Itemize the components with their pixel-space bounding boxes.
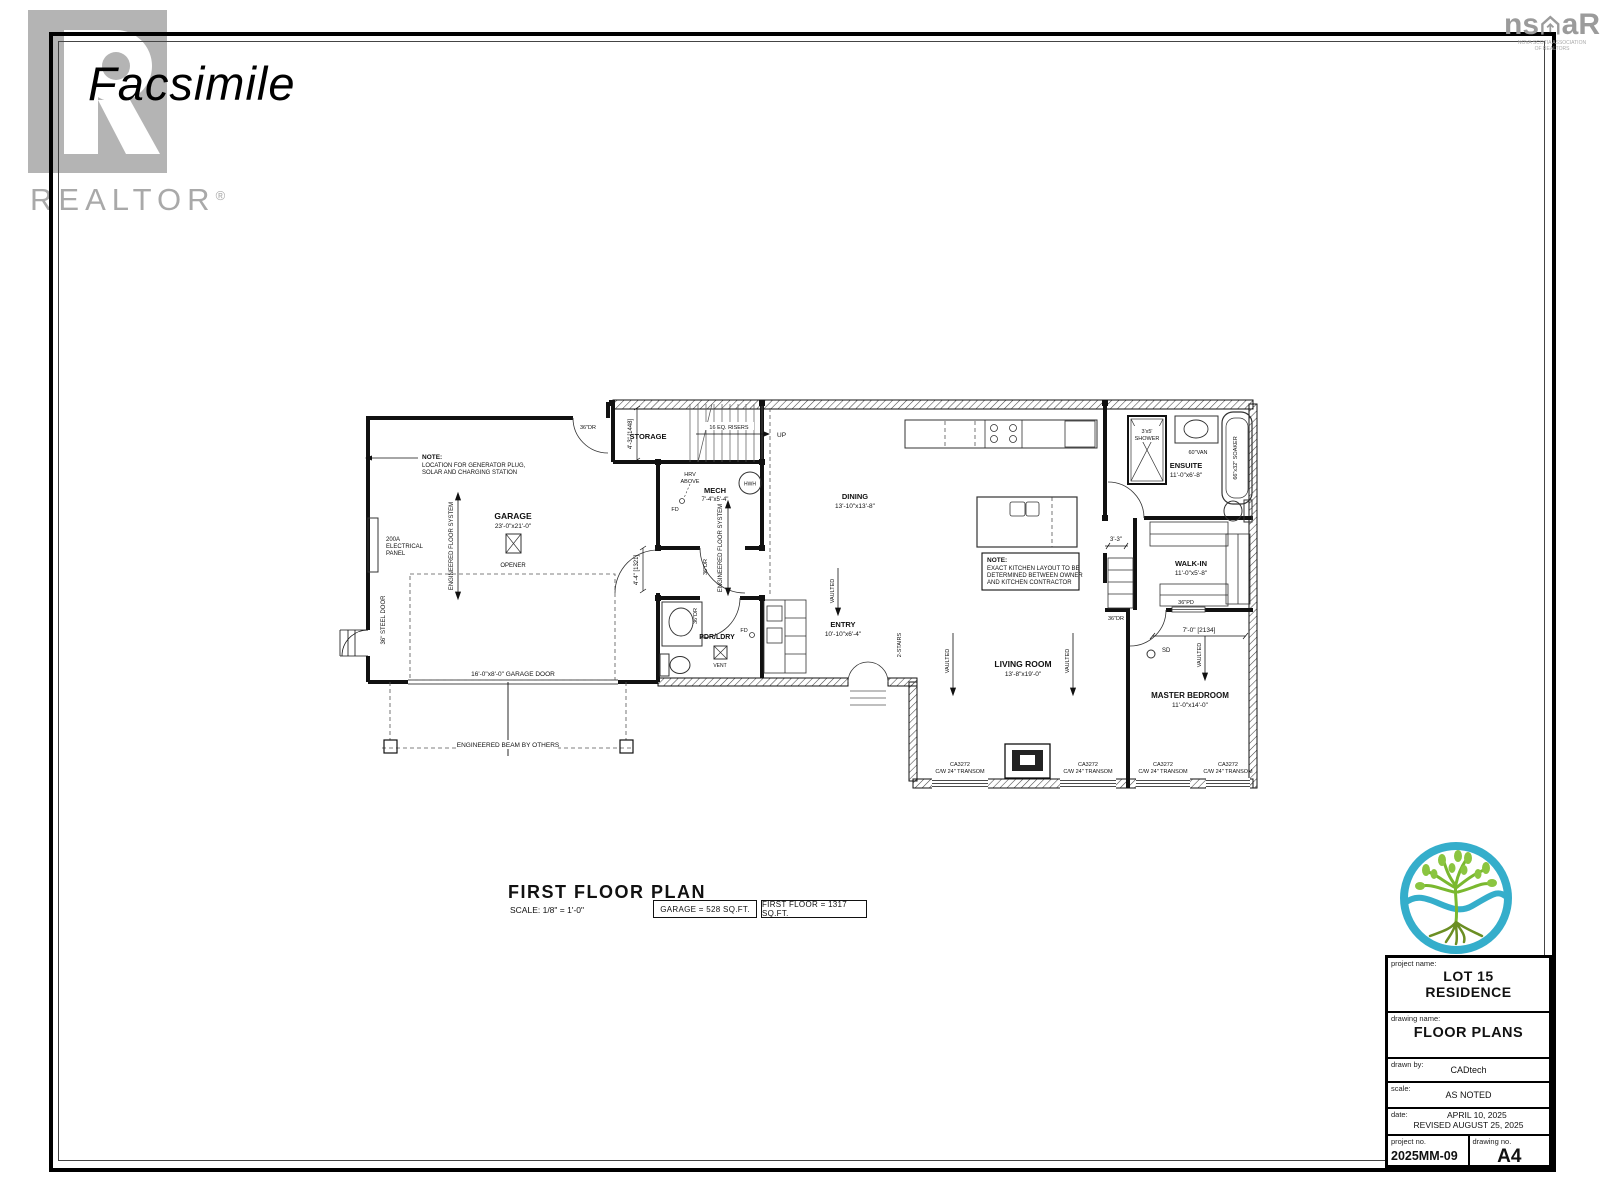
pocket-door: [1172, 607, 1205, 612]
risers-label: 16 EQ. RISERS: [709, 425, 748, 431]
steel-door-label: 36" STEEL DOOR: [381, 595, 387, 645]
first-floor-area-value: FIRST FLOOR = 1317 SQ.FT.: [762, 900, 866, 918]
window-2-model: CA3272: [1078, 762, 1098, 768]
dim-3-3: 3'-3": [1110, 537, 1122, 543]
hatched-walls: [613, 400, 1257, 788]
shower-label-2: SHOWER: [1135, 436, 1160, 442]
kitchen-island: [977, 497, 1077, 547]
ensuite-dims: 11'-0"x6'-8": [1170, 472, 1203, 479]
master-dim: 7'-0" [2134]: [1183, 627, 1216, 634]
nsar-wordmark-left: ns: [1504, 12, 1539, 38]
window-4-model: CA3272: [1218, 762, 1238, 768]
builder-logo: [1396, 838, 1516, 958]
window-2-transom: C/W 24" TRANSOM: [1063, 769, 1113, 775]
garage-door-opening: [408, 680, 618, 684]
fireplace: [1005, 744, 1050, 778]
vaulted-label-living-l: VAULTED: [945, 649, 951, 674]
door-36-storage: 36"DR: [580, 425, 596, 431]
two-stairs-label: 2-STAIRS: [897, 633, 903, 658]
dining-label: DINING: [842, 492, 868, 501]
facsimile-floor-plan-sheet: { "watermark": { "text": "Facsimile" }, …: [0, 0, 1600, 1195]
mech-label: MECH: [704, 486, 726, 495]
master-dims: 11'-0"x14'-0": [1172, 702, 1209, 709]
garage-opener: [506, 534, 521, 553]
kitchen-note-l2: DETERMINED BETWEEN OWNER: [987, 573, 1083, 579]
garage-label: GARAGE: [494, 511, 532, 521]
eng-floor-label-2: ENGINEERED FLOOR SYSTEM: [718, 504, 724, 592]
project-name-row: project name: LOT 15 RESIDENCE: [1388, 958, 1549, 1013]
note-leader: [365, 456, 418, 461]
sd-label: SD: [1162, 648, 1171, 654]
smoke-detector: [1147, 650, 1155, 658]
kitchen-note-title: NOTE:: [987, 557, 1007, 564]
garage-area-box: GARAGE = 528 SQ.FT.: [653, 900, 757, 918]
project-name-line1: LOT 15: [1391, 968, 1546, 984]
steel-door-landing: [340, 630, 368, 656]
project-name-line2: RESIDENCE: [1391, 984, 1546, 1000]
nsar-subtext-2: OF REALTORS: [1504, 46, 1600, 52]
garage-area-value: GARAGE = 528 SQ.FT.: [660, 905, 750, 914]
stair-dim: 4'-3" [1448]: [628, 419, 634, 450]
mech-dims: 7'-4"x5'-4": [702, 497, 729, 503]
pdr-label: PDR/LDRY: [699, 634, 735, 641]
living-label: LIVING ROOM: [994, 659, 1051, 669]
first-floor-plan-drawing: GARAGE 23'-0"x21'-0" OPENER STORAGE 16 E…: [330, 388, 1260, 798]
nsar-logo: ns aR NOVA SCOTIA ASSOCIATION OF REALTOR…: [1504, 12, 1600, 52]
hall-dim: 4'-4" [1321]: [634, 555, 640, 586]
tree-icon: [1422, 860, 1490, 922]
door-36-master: 36"DR: [1108, 616, 1124, 622]
date-value-2: REVISED AUGUST 25, 2025: [1391, 1120, 1546, 1130]
project-no-label: project no.: [1391, 1137, 1465, 1146]
opener-label: OPENER: [500, 563, 526, 569]
date-value-1: APRIL 10, 2025: [1391, 1110, 1546, 1120]
master-label: MASTER BEDROOM: [1151, 691, 1229, 700]
floor-plan-scale: SCALE: 1/8" = 1'-0": [510, 905, 584, 915]
date-label: date:: [1391, 1110, 1408, 1119]
drawn-by-row: drawn by: CADtech: [1388, 1059, 1549, 1083]
fd-label-2: FD: [740, 628, 747, 634]
window-3-transom: C/W 24" TRANSOM: [1138, 769, 1188, 775]
window-3-model: CA3272: [1153, 762, 1173, 768]
hrv-label-2: ABOVE: [681, 479, 700, 485]
scale-row: scale: AS NOTED: [1388, 1083, 1549, 1109]
electrical-label-1: 200A: [386, 537, 400, 543]
drawing-no-label: drawing no.: [1473, 1137, 1547, 1146]
drawing-no-cell: drawing no. A4: [1470, 1136, 1550, 1169]
hrv-label-1: HRV: [684, 472, 696, 478]
date-row: date: APRIL 10, 2025 REVISED AUGUST 25, …: [1388, 1109, 1549, 1136]
realtor-wordmark: REALTOR®: [30, 182, 225, 218]
generator-note-l2: SOLAR AND CHARGING STATION: [422, 470, 517, 476]
window-4-transom: C/W 24" TRANSOM: [1203, 769, 1253, 775]
fd-label: FD: [671, 507, 678, 513]
numbers-row: project no. 2025MM-09 drawing no. A4: [1388, 1136, 1549, 1169]
entry-label: ENTRY: [830, 620, 855, 629]
dashed-lines: [382, 408, 1052, 748]
walkin-label: WALK-IN: [1175, 559, 1207, 568]
up-label: UP: [777, 432, 786, 439]
generator-note-l1: LOCATION FOR GENERATOR PLUG,: [422, 463, 526, 469]
vaulted-label-entry: VAULTED: [830, 579, 836, 604]
shower-label-1: 3'x5': [1142, 429, 1153, 435]
ensuite-label: ENSUITE: [1170, 461, 1203, 470]
vaulted-label-master: VAULTED: [1197, 643, 1203, 668]
drawing-no-value: A4: [1473, 1146, 1547, 1168]
entry-closet: [764, 600, 806, 673]
house-icon: [1540, 12, 1561, 38]
stairs: [690, 404, 770, 462]
vaulted-label-living-r: VAULTED: [1065, 649, 1071, 674]
vanity-label: 60"VAN: [1189, 450, 1208, 456]
garage-door-label: 16'-0"x8'-0" GARAGE DOOR: [471, 671, 555, 678]
registered-mark: ®: [216, 188, 226, 203]
kitchen-counters: [905, 420, 1097, 448]
garage-dims: 23'-0"x21'-0": [495, 523, 532, 530]
walkin-dims: 11'-0"x5'-8": [1175, 570, 1208, 577]
nsar-wordmark-right: aR: [1562, 12, 1600, 38]
soaker-label: 66"x32" SOAKER: [1233, 436, 1239, 479]
window-1-model: CA3272: [950, 762, 970, 768]
electrical-label-2: ELECTRICAL: [386, 544, 424, 550]
hwh-label: HWH: [744, 482, 756, 488]
title-block: project name: LOT 15 RESIDENCE drawing n…: [1385, 955, 1552, 1168]
drawing-name-value: FLOOR PLANS: [1391, 1025, 1546, 1041]
scale-value: AS NOTED: [1391, 1090, 1546, 1100]
project-no-cell: project no. 2025MM-09: [1388, 1136, 1470, 1169]
drawing-name-label: drawing name:: [1391, 1014, 1546, 1023]
dining-dims: 13'-10"x13'-8": [835, 503, 876, 510]
eng-floor-label-1: ENGINEERED FLOOR SYSTEM: [449, 502, 455, 590]
storage-label: STORAGE: [630, 432, 667, 441]
facsimile-watermark: Facsimile: [88, 56, 295, 111]
drawing-name-row: drawing name: FLOOR PLANS: [1388, 1013, 1549, 1059]
door-36-mech: 36"DR: [703, 559, 709, 575]
first-floor-area-box: FIRST FLOOR = 1317 SQ.FT.: [761, 900, 867, 918]
project-no-value: 2025MM-09: [1391, 1149, 1465, 1163]
project-name-label: project name:: [1391, 959, 1546, 968]
vent-label: VENT: [713, 663, 726, 669]
pocket-door-36: 36"PD: [1178, 600, 1194, 606]
living-dims: 13'-8"x19'-0": [1005, 671, 1042, 678]
generator-note-title: NOTE:: [422, 454, 442, 461]
door-36-pdr: 36"DR: [693, 608, 699, 624]
entry-dims: 10'-10"x6'-4": [825, 631, 862, 638]
kitchen-note-l3: AND KITCHEN CONTRACTOR: [987, 580, 1072, 586]
walls: [368, 404, 1253, 788]
entry-steps: [850, 691, 886, 705]
window-1-transom: C/W 24" TRANSOM: [935, 769, 985, 775]
electrical-label-3: PANEL: [386, 551, 406, 557]
tree-roots: [1430, 922, 1482, 944]
kitchen-note-l1: EXACT KITCHEN LAYOUT TO BE: [987, 566, 1079, 572]
eng-beam-label: ENGINEERED BEAM BY OTHERS: [457, 742, 560, 749]
